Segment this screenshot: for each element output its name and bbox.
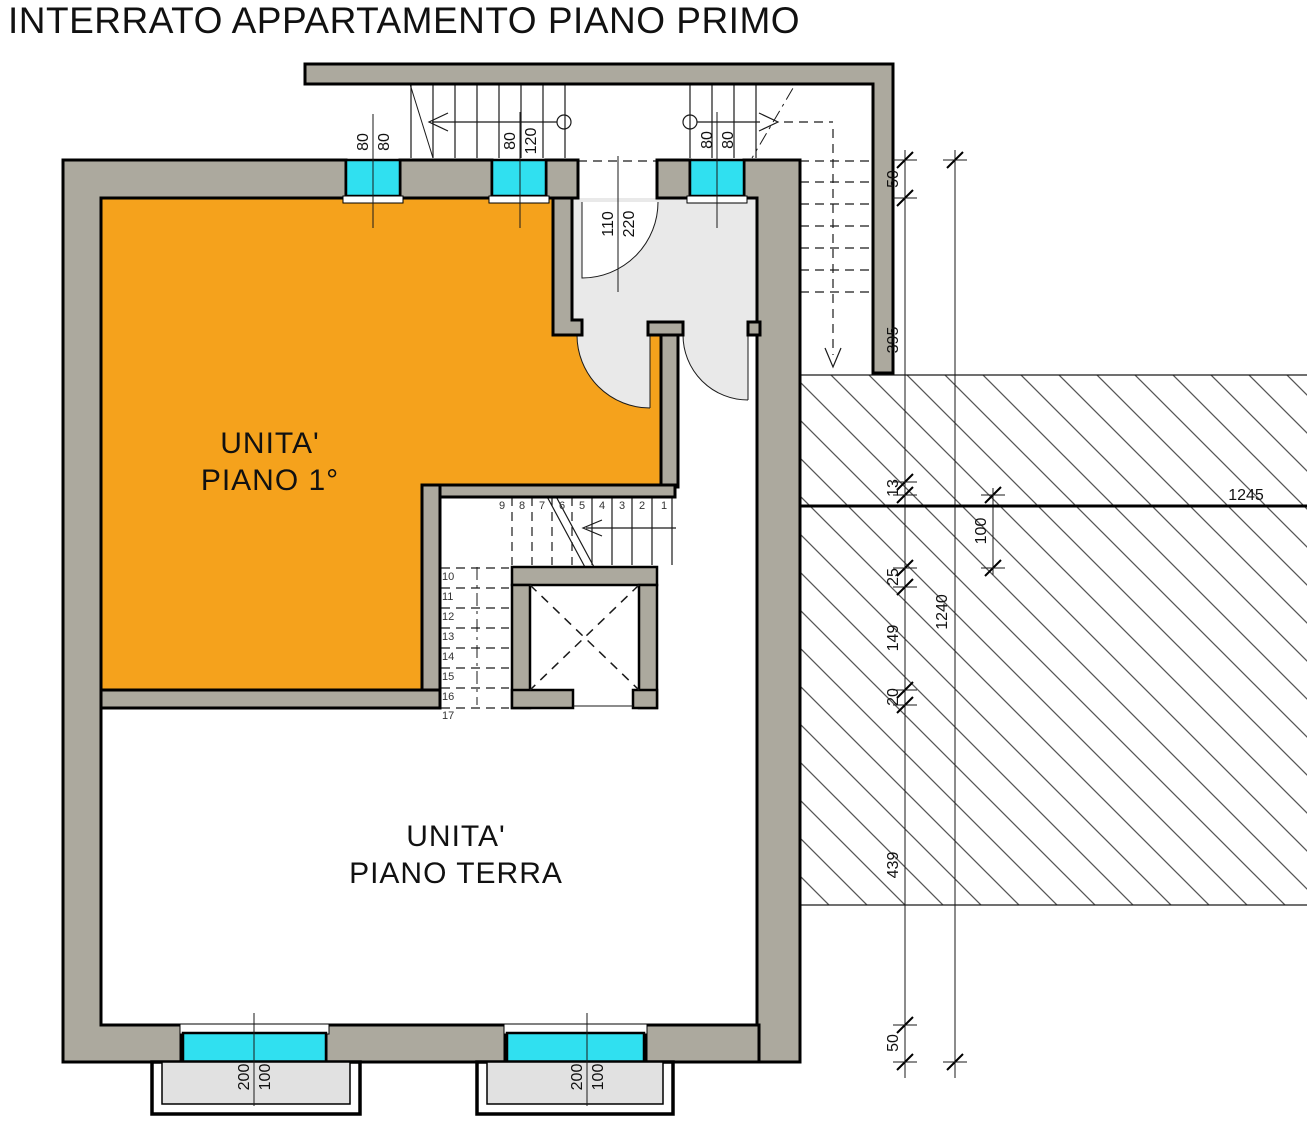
hatch-fill bbox=[799, 375, 1307, 905]
stair-num: 4 bbox=[599, 500, 605, 512]
dim-bwindow2-width: 200 bbox=[569, 1064, 586, 1091]
window-top-2-sill bbox=[489, 196, 549, 203]
wall-pier-top-3 bbox=[657, 160, 690, 198]
stair-num: 8 bbox=[519, 500, 525, 512]
wall-door-pier bbox=[748, 322, 760, 335]
window-bottom-2 bbox=[507, 1033, 644, 1062]
dim-bottom-offset: 50 bbox=[885, 1034, 902, 1052]
dim-total-height: 1240 bbox=[934, 594, 951, 630]
floor-plan-drawing: 80 80 80 120 80 80 110 220 200 100 200 1… bbox=[0, 0, 1307, 1147]
dim-seg-20: 20 bbox=[885, 688, 902, 706]
wall-vestibule-south bbox=[648, 322, 683, 335]
dim-window3-width: 80 bbox=[699, 131, 716, 149]
page-title: INTERRATO APPARTAMENTO PIANO PRIMO bbox=[8, 0, 800, 41]
unit1-label-line2: PIANO 1° bbox=[201, 464, 339, 497]
dim-window2-height: 120 bbox=[523, 128, 540, 155]
wall-pier-top-2 bbox=[546, 160, 578, 198]
stair-num: 6 bbox=[559, 500, 565, 512]
wall-bottom-mid bbox=[326, 1025, 505, 1062]
dim-top-offset: 50 bbox=[885, 170, 902, 188]
window-well-1-inner bbox=[162, 1062, 350, 1104]
dim-ledge: 13 bbox=[885, 479, 902, 497]
terra-label-line2: PIANO TERRA bbox=[349, 857, 563, 890]
window-top-2 bbox=[492, 160, 546, 196]
stair-num: 9 bbox=[499, 500, 505, 512]
stair-num: 17 bbox=[442, 710, 454, 722]
dim-gap-25: 25 bbox=[885, 568, 902, 586]
wall-bottom-right bbox=[646, 1025, 759, 1062]
stair-num: 1 bbox=[661, 500, 667, 512]
wall-stairwell-north bbox=[422, 485, 675, 497]
terrain-hatch-area bbox=[797, 375, 1307, 905]
dim-seg-439: 439 bbox=[885, 852, 902, 879]
stair-num: 12 bbox=[442, 611, 454, 623]
dim-total-width: 1245 bbox=[1228, 487, 1264, 504]
elevator-wall-top bbox=[512, 567, 657, 585]
dim-window1-width: 80 bbox=[355, 133, 372, 151]
stair-num: 16 bbox=[442, 691, 454, 703]
dim-bwindow2-height: 100 bbox=[590, 1064, 607, 1091]
stair-num: 10 bbox=[442, 571, 454, 583]
stair-num: 2 bbox=[639, 500, 645, 512]
elevator-wall-bottom-left bbox=[512, 690, 573, 708]
stair-num: 5 bbox=[579, 500, 585, 512]
dim-window3-height: 80 bbox=[720, 131, 737, 149]
stair-num: 15 bbox=[442, 671, 454, 683]
stair-num: 11 bbox=[442, 591, 453, 603]
dim-bwindow1-height: 100 bbox=[257, 1064, 274, 1091]
unit1-label-line1: UNITA' bbox=[220, 427, 320, 460]
dim-window2-width: 80 bbox=[502, 132, 519, 150]
dim-window1-height: 80 bbox=[376, 133, 393, 151]
dim-bwindow1-width: 200 bbox=[236, 1064, 253, 1091]
dim-seg-149: 149 bbox=[885, 625, 902, 652]
dim-door-height: 220 bbox=[621, 211, 638, 238]
wall-unit1-south bbox=[101, 690, 440, 708]
dim-landing-width: 100 bbox=[973, 518, 990, 545]
dim-stairwell-depth: 395 bbox=[885, 327, 902, 354]
stair-num: 7 bbox=[539, 500, 545, 512]
wall-stairwell-west bbox=[422, 485, 440, 708]
dim-door-width: 110 bbox=[600, 211, 617, 237]
stair-num: 3 bbox=[619, 500, 625, 512]
stair-num: 13 bbox=[442, 631, 454, 643]
elevator-wall-bottom-right bbox=[633, 690, 657, 708]
stair-num: 14 bbox=[442, 651, 454, 663]
terra-label-line1: UNITA' bbox=[406, 820, 506, 853]
wall-corridor-stem bbox=[661, 335, 678, 487]
wall-pier-top-1 bbox=[400, 160, 492, 198]
